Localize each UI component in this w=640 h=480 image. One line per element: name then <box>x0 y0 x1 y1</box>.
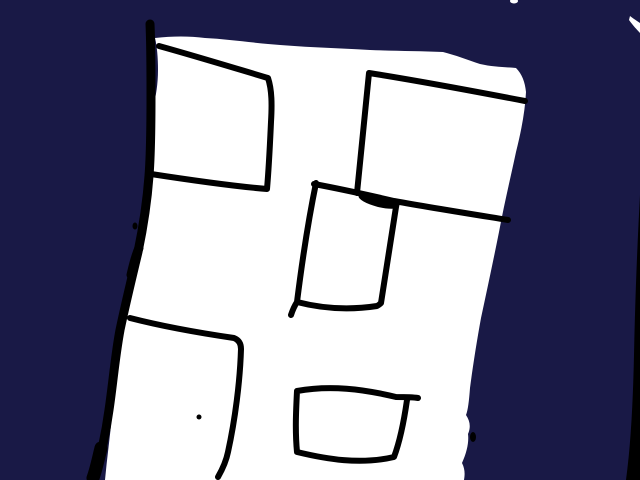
edge-ink-fleck <box>470 432 476 442</box>
border-ink-speck <box>133 223 138 230</box>
paint-stage <box>0 0 640 480</box>
ink-dot <box>197 415 202 420</box>
top-white-speck <box>510 0 518 4</box>
paper-sheet <box>105 37 526 480</box>
corner-white-wedge <box>629 16 640 33</box>
border-foot-stroke <box>93 448 101 478</box>
right-edge-sliver <box>626 195 640 480</box>
drawing-canvas[interactable] <box>0 0 640 480</box>
